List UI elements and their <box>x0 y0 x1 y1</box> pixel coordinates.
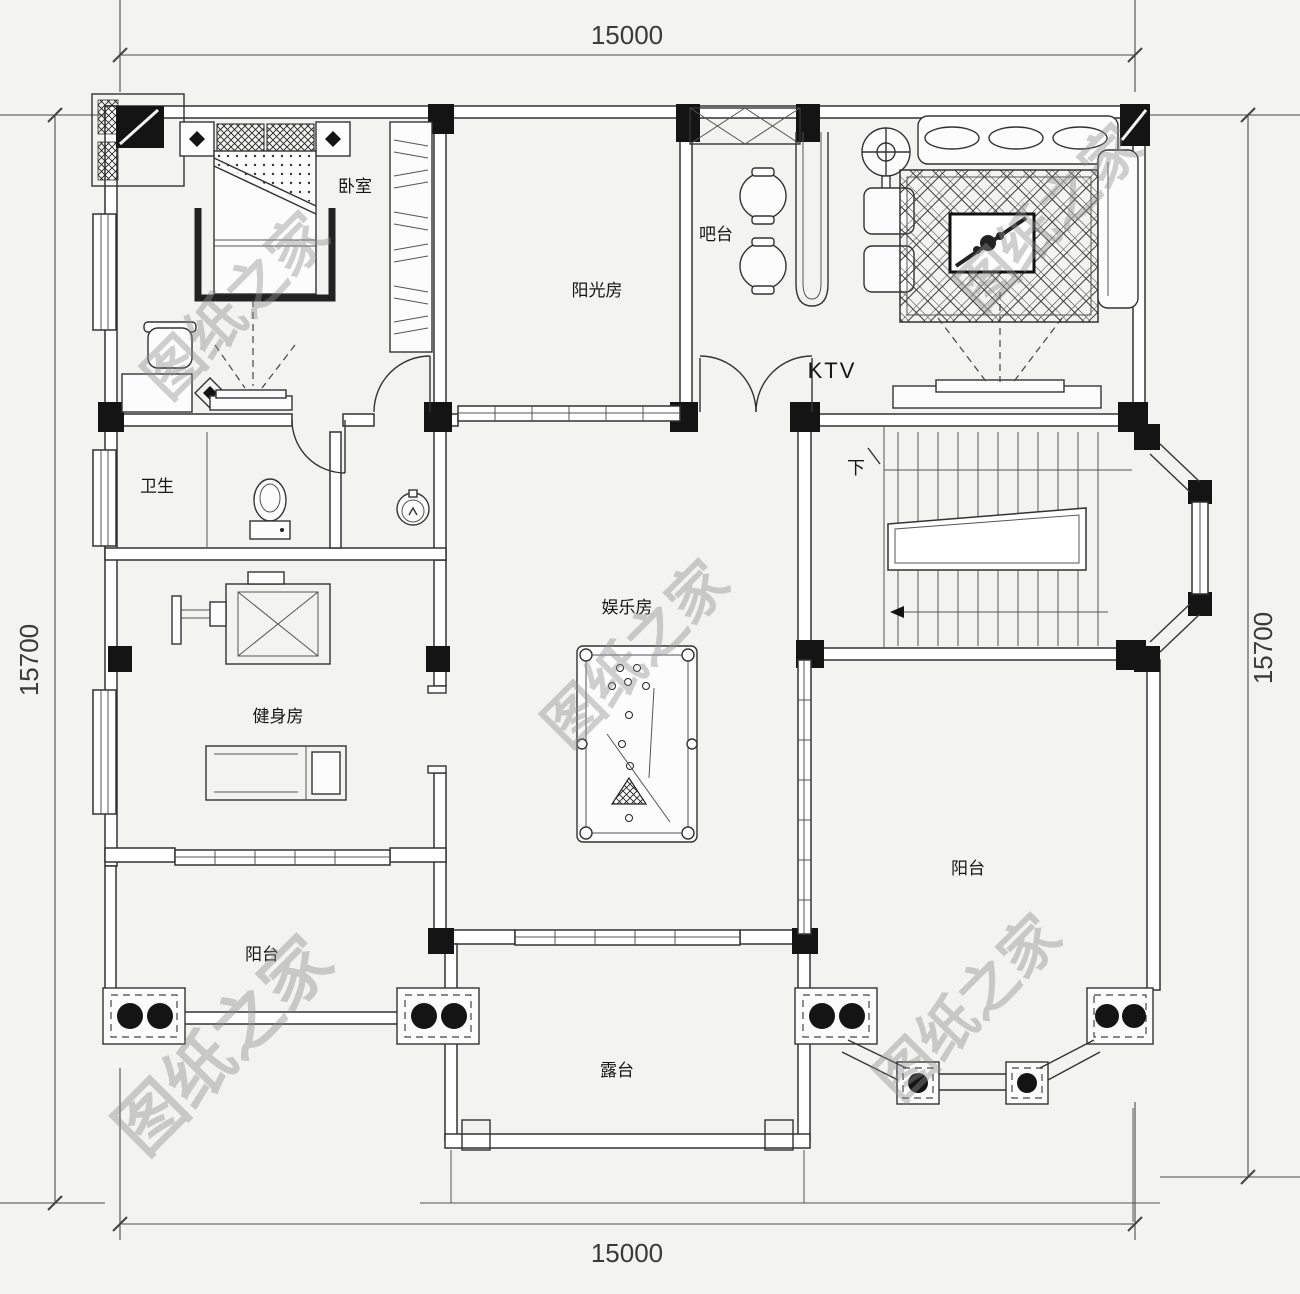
railing-column-small <box>1006 1062 1048 1104</box>
railing-column-large <box>1087 988 1153 1044</box>
dim-bottom: 15000 <box>591 1238 663 1268</box>
room-label-sunroom: 阳光房 <box>572 281 623 300</box>
dim-right: 15700 <box>1248 612 1278 684</box>
window-gameroom-east <box>798 660 811 934</box>
window-gym-south <box>175 850 390 865</box>
window-bath-west <box>93 450 116 546</box>
window-sunroom-south <box>458 406 680 421</box>
window-gameroom-south <box>515 930 740 945</box>
room-label-terrace: 露台 <box>600 1061 634 1080</box>
floor-plan-canvas: 15000 15000 15700 15700 <box>0 0 1300 1294</box>
room-label-ktv: KTV <box>808 358 857 383</box>
room-label-bar: 吧台 <box>699 225 733 244</box>
room-label-bedroom: 卧室 <box>338 177 372 196</box>
railing-column-large <box>795 988 877 1044</box>
dim-top: 15000 <box>591 20 663 50</box>
window-gym-west <box>93 690 116 814</box>
room-label-balcony-right: 阳台 <box>951 859 985 878</box>
dim-left: 15700 <box>14 624 44 696</box>
room-label-bathroom: 卫生 <box>140 477 174 496</box>
wardrobe <box>390 122 432 352</box>
window-bedroom-west <box>93 214 116 330</box>
blueprint-sheet: 15000 15000 15700 15700 <box>0 0 1300 1294</box>
room-label-gym: 健身房 <box>253 707 304 726</box>
stairs-down-label: 下 <box>847 458 865 478</box>
railing-column-large <box>397 988 479 1044</box>
railing-column-large <box>103 988 185 1044</box>
